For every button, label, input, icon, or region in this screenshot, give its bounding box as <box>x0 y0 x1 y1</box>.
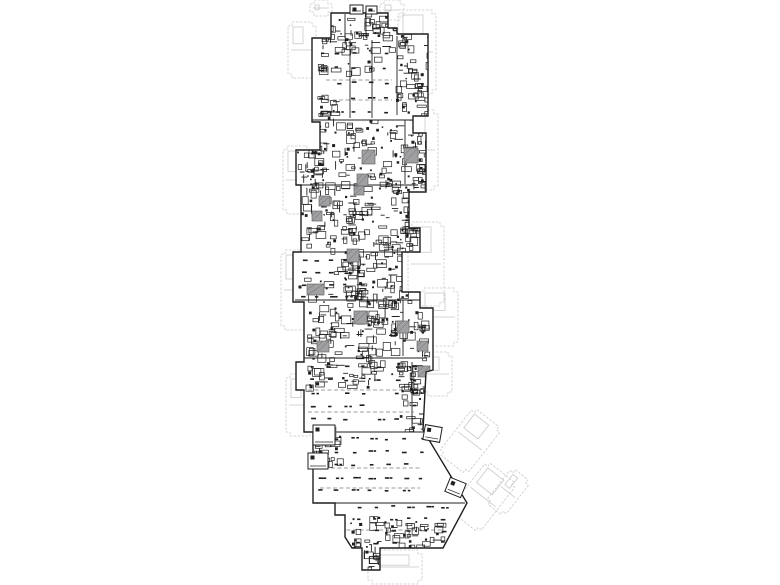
stair-pod <box>423 425 442 443</box>
core-block <box>354 311 367 324</box>
core-block <box>317 341 329 352</box>
core-block <box>397 321 409 333</box>
core-block <box>404 148 418 163</box>
stair-pod <box>308 453 328 469</box>
core-block <box>312 211 322 221</box>
drawing-canvas <box>0 0 780 585</box>
floor-plan <box>0 0 780 585</box>
core-block <box>354 186 364 195</box>
stair-pod <box>313 425 335 445</box>
core-block <box>347 249 359 262</box>
core-block <box>417 341 428 351</box>
ghost-unit-outline <box>310 0 332 16</box>
stair-pod <box>366 6 377 14</box>
ghost-unit-outline <box>438 407 502 475</box>
core-block <box>357 174 368 186</box>
core-block <box>319 196 330 206</box>
stair-pod <box>350 5 363 14</box>
ghost-unit-outline <box>485 467 531 516</box>
core-block <box>307 284 324 295</box>
core-block <box>362 150 375 164</box>
